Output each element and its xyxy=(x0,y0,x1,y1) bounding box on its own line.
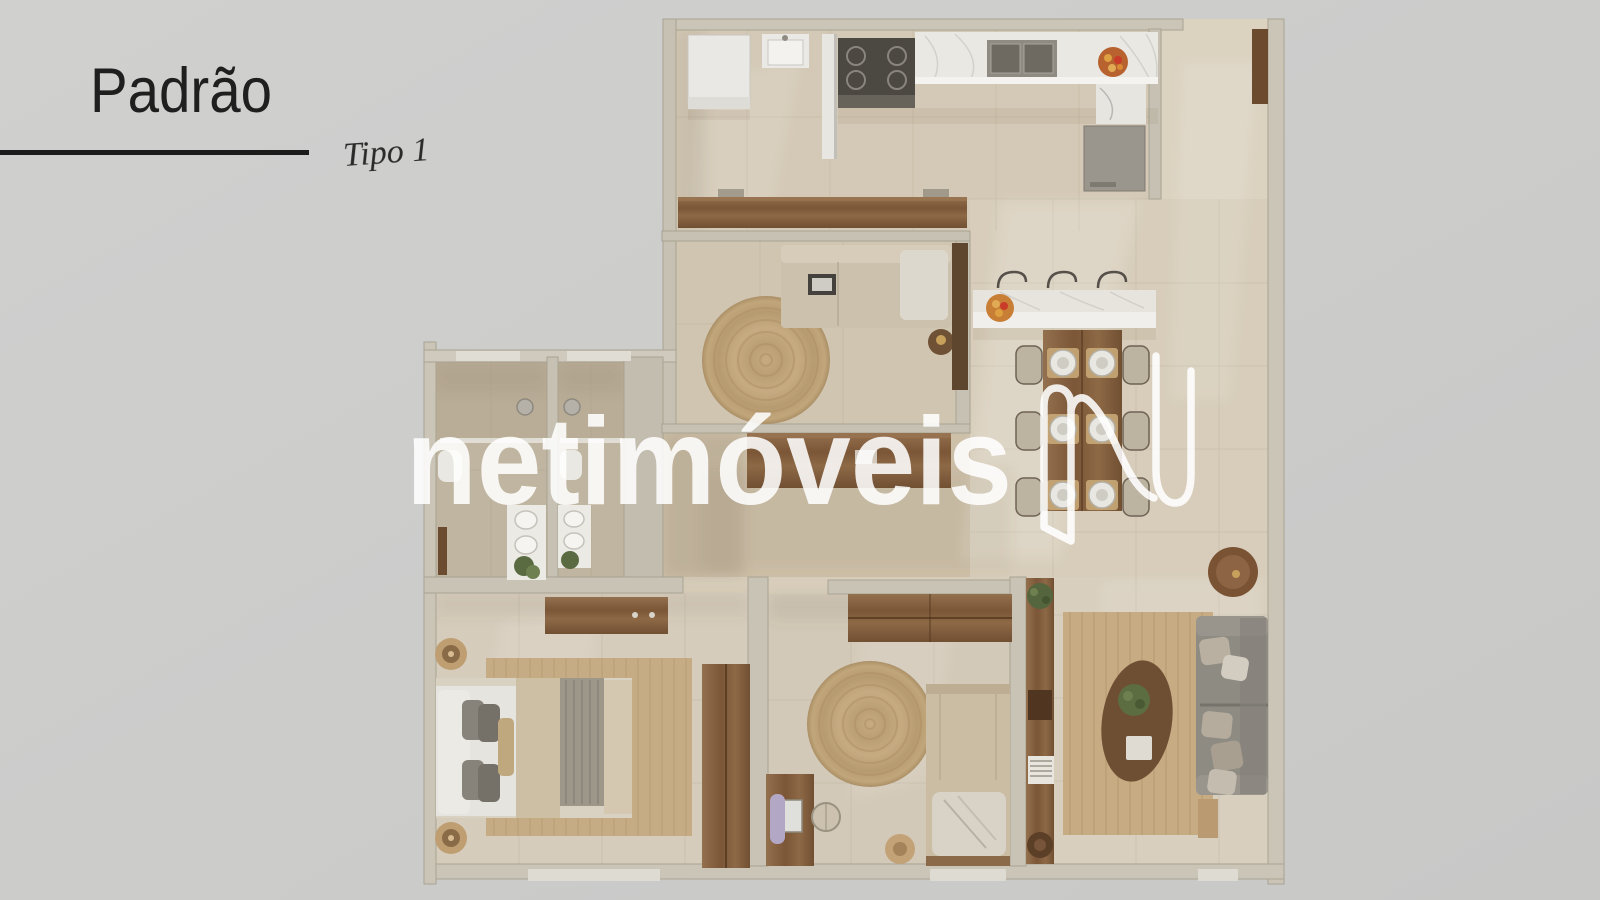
svg-text:Tipo 1: Tipo 1 xyxy=(342,131,430,174)
svg-text:Padrão: Padrão xyxy=(90,56,272,126)
svg-text:netimóveis: netimóveis xyxy=(406,393,1012,531)
